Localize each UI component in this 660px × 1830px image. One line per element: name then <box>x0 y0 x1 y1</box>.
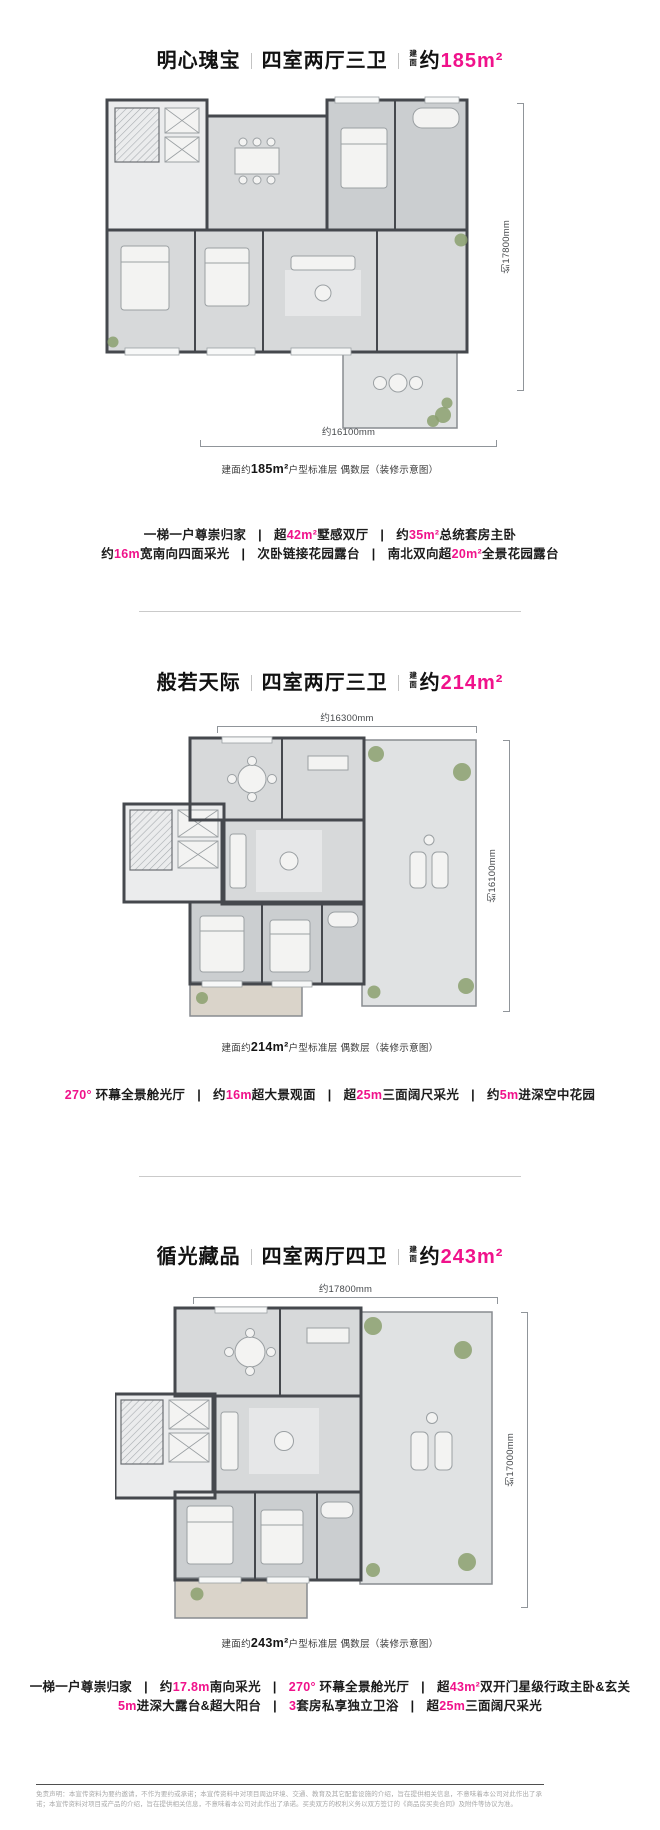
bathtub <box>413 108 459 128</box>
section-divider <box>139 1176 521 1177</box>
bed <box>341 128 387 188</box>
garden-terrace <box>343 348 457 428</box>
plant <box>455 234 468 247</box>
title-divider <box>398 53 399 69</box>
floor-plan-1 <box>95 90 475 430</box>
floor-plan-3-caption: 建面约243m²户型标准层 偶数层（装修示意图） <box>0 1636 660 1650</box>
floor-plan-2-drawing <box>122 734 480 1019</box>
plan-name: 般若天际 <box>157 672 241 694</box>
plan-3-features: 一梯一户尊崇归家|约17.8m南向采光|270° 环幕全景舱光厅|超43m²双开… <box>0 1678 660 1716</box>
window <box>207 348 255 355</box>
window <box>222 737 272 743</box>
floor-plan-1-drawing <box>95 90 475 430</box>
stair-elevator-core <box>107 100 207 230</box>
floor-plan-3-height-dimension: 约17000mm <box>504 1312 528 1608</box>
area-approx: 约 <box>420 50 441 72</box>
sofa <box>285 256 361 316</box>
bed <box>270 920 310 972</box>
floor-plan-1-height-dimension: 约17800mm <box>500 103 524 391</box>
disclaimer-rule <box>36 1784 544 1785</box>
area-approx: 约 <box>420 672 441 694</box>
plan-3-title: 循光藏品四室两厅四卫建面约243m² <box>0 1240 660 1269</box>
dimension-label: 约16100mm <box>200 424 497 438</box>
title-divider <box>398 675 399 691</box>
kitchen-island <box>307 1328 349 1343</box>
plan-rooms: 四室两厅三卫 <box>262 672 388 694</box>
plan-name: 明心瑰宝 <box>157 50 241 72</box>
floor-plan-2 <box>122 734 480 1019</box>
window <box>202 981 242 987</box>
plan-1-title: 明心瑰宝四室两厅三卫建面约185m² <box>0 44 660 73</box>
area-value: 243m² <box>441 1246 504 1268</box>
dimension-bracket <box>193 1297 498 1304</box>
floor-plan-2-height-dimension: 约16100mm <box>486 740 510 1012</box>
plan-1-features: 一梯一户尊崇归家|超42m²墅感双厅|约35m²总统套房主卧 约16m宽南向四面… <box>0 526 660 564</box>
plan-2-title: 般若天际四室两厅三卫建面约214m² <box>0 666 660 695</box>
window <box>125 348 179 355</box>
dimension-bracket <box>521 1312 528 1608</box>
floor-plan-1-caption: 建面约185m²户型标准层 偶数层（装修示意图） <box>0 462 660 476</box>
plan-rooms: 四室两厅三卫 <box>262 50 388 72</box>
bed <box>200 916 244 972</box>
bed <box>187 1506 233 1564</box>
floor-plan-2-width-dimension: 约16300mm <box>217 710 477 733</box>
area-label: 建面 <box>409 49 418 67</box>
dimension-label: 约17800mm <box>500 220 514 273</box>
plan-rooms: 四室两厅四卫 <box>262 1246 388 1268</box>
plant <box>191 1588 204 1601</box>
window <box>215 1307 267 1313</box>
area-label: 建面 <box>409 671 418 689</box>
dimension-label: 约16300mm <box>217 710 477 724</box>
bed <box>205 248 249 306</box>
bed <box>261 1510 303 1564</box>
kitchen-island <box>308 756 348 770</box>
floor-plan-1-width-dimension: 约16100mm <box>200 424 497 447</box>
plan-name: 循光藏品 <box>157 1246 241 1268</box>
dimension-label: 约17800mm <box>193 1281 498 1295</box>
dimension-bracket <box>217 726 477 733</box>
bathtub <box>328 912 358 927</box>
sky-terrace <box>362 740 476 1006</box>
feature-line: 一梯一户尊崇归家|约17.8m南向采光|270° 环幕全景舱光厅|超43m²双开… <box>0 1678 660 1697</box>
sofa <box>221 1408 319 1474</box>
bathtub <box>321 1502 353 1518</box>
dimension-bracket <box>200 440 497 447</box>
window <box>272 981 312 987</box>
dimension-bracket <box>517 103 524 391</box>
dimension-bracket <box>503 740 510 1012</box>
plant <box>196 992 208 1004</box>
section-divider <box>139 611 521 612</box>
feature-line: 一梯一户尊崇归家|超42m²墅感双厅|约35m²总统套房主卧 <box>0 526 660 545</box>
sofa <box>230 830 322 892</box>
sky-terrace <box>360 1312 492 1584</box>
window <box>425 97 459 103</box>
floor-plan-2-caption: 建面约214m²户型标准层 偶数层（装修示意图） <box>0 1040 660 1054</box>
window <box>291 348 351 355</box>
floorplan-brochure-page: 明心瑰宝四室两厅三卫建面约185m² <box>0 0 660 1830</box>
window <box>267 1577 309 1583</box>
stair-elevator-core <box>115 1394 215 1498</box>
feature-line: 270° 环幕全景舱光厅|约16m超大景观面|超25m三面阔尺采光|约5m进深空… <box>0 1086 660 1105</box>
title-divider <box>398 1249 399 1265</box>
disclaimer-text: 免责声明：本宣传资料为要约邀请，不作为要约或承诺；本宣传资料中对项目周边环境、交… <box>36 1790 542 1810</box>
floor-plan-3 <box>115 1304 498 1622</box>
title-divider <box>251 53 252 69</box>
floor-plan-3-width-dimension: 约17800mm <box>193 1281 498 1304</box>
plan-2-features: 270° 环幕全景舱光厅|约16m超大景观面|超25m三面阔尺采光|约5m进深空… <box>0 1086 660 1105</box>
area-value: 185m² <box>441 50 504 72</box>
feature-line: 约16m宽南向四面采光|次卧链接花园露台|南北双向超20m²全景花园露台 <box>0 545 660 564</box>
bed <box>121 246 169 310</box>
area-value: 214m² <box>441 672 504 694</box>
window <box>199 1577 241 1583</box>
plant <box>108 337 119 348</box>
area-label: 建面 <box>409 1245 418 1263</box>
title-divider <box>251 675 252 691</box>
floor-plan-3-drawing <box>115 1304 498 1622</box>
dining-table <box>235 138 279 184</box>
area-approx: 约 <box>420 1246 441 1268</box>
title-divider <box>251 1249 252 1265</box>
window <box>335 97 379 103</box>
dimension-label: 约16100mm <box>486 849 500 902</box>
dimension-label: 约17000mm <box>504 1433 518 1486</box>
feature-line: 5m进深大露台&超大阳台|3套房私享独立卫浴|超25m三面阔尺采光 <box>0 1697 660 1716</box>
